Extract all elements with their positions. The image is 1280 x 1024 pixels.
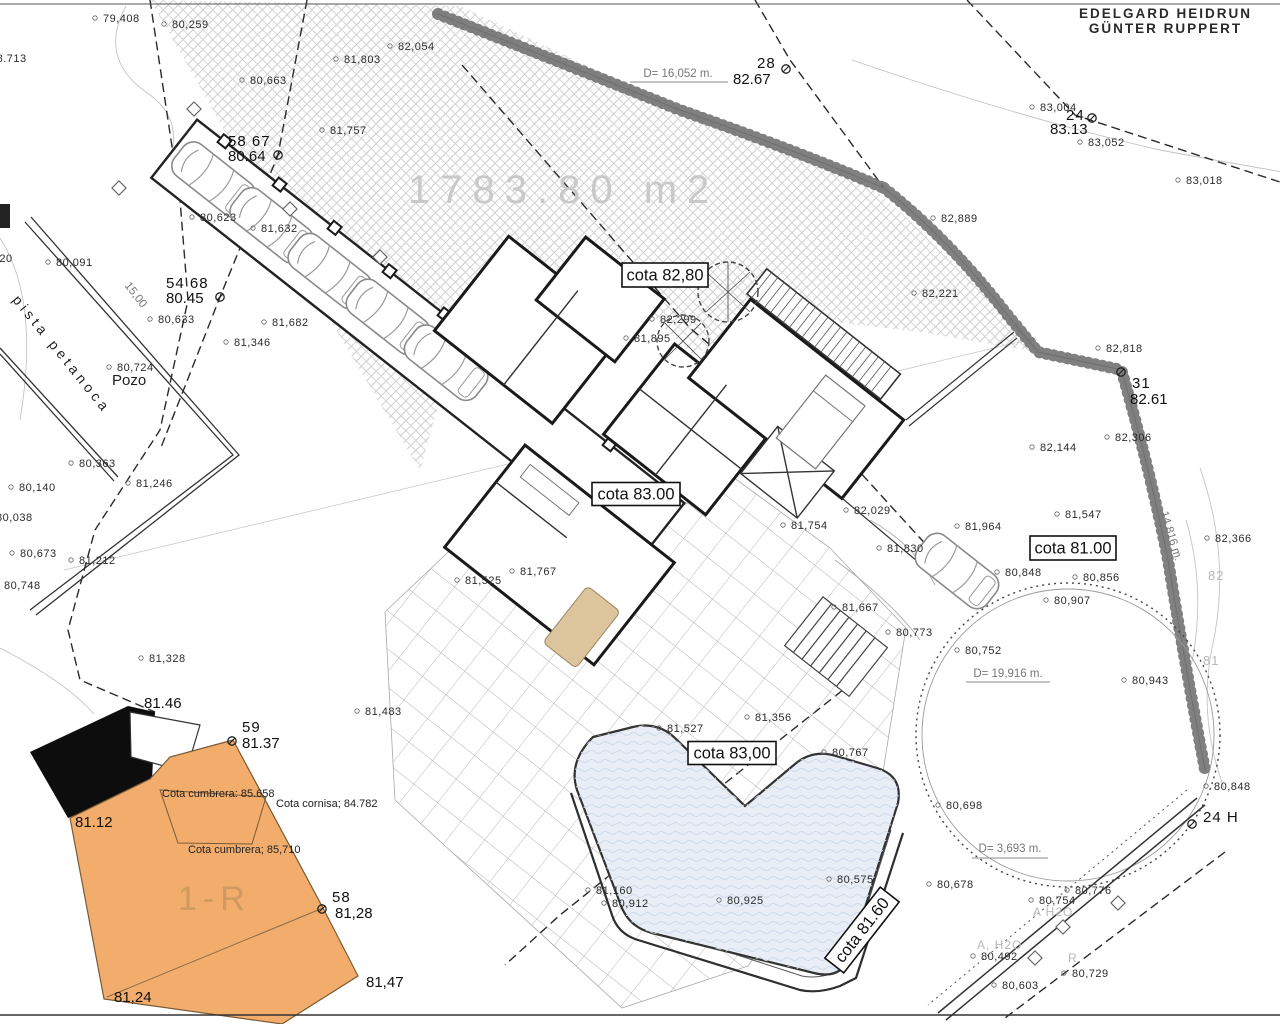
spot-elevation: 80,729 xyxy=(1072,968,1109,980)
spot-elevation: 81,525 xyxy=(465,575,502,587)
cota-box: cota 83,00 xyxy=(688,742,776,765)
spot-elevation: 81,682 xyxy=(272,317,309,329)
cota-box: cota 83.00 xyxy=(592,483,680,506)
spot-elevation: 80,776 xyxy=(1075,885,1112,897)
vertex-elevation: 80.64 xyxy=(228,148,266,165)
spot-elevation: 80,848 xyxy=(1214,781,1251,793)
parcel-area-label: 1783.80 m2 xyxy=(408,168,719,213)
site-plan-page: 79,40880,25978.71382,05481,80380,66381,7… xyxy=(0,0,1280,1024)
spot-elevation: 80,912 xyxy=(612,898,649,910)
spot-elevation: 82,054 xyxy=(398,41,435,53)
vertex-elevation: 81.37 xyxy=(242,735,280,752)
vertex-elevation: 82.67 xyxy=(733,71,771,88)
spot-elevation: 80,363 xyxy=(79,458,116,470)
spot-elevation: 81,830 xyxy=(887,543,924,555)
spot-elevation: 81,160 xyxy=(596,885,633,897)
spot-elevation: 80,673 xyxy=(20,548,57,560)
spot-elevation: 81,767 xyxy=(520,566,557,578)
spot-elevation: 80,752 xyxy=(965,645,1002,657)
roof-height-label: Cota cornisa; 84.782 xyxy=(276,798,378,810)
roof-height-label: Cota cumbrera: 85.658 xyxy=(162,788,275,800)
spot-elevation: 80,575 xyxy=(837,874,874,886)
spot-elevation: 81,328 xyxy=(149,653,186,665)
owner-name: EDELGARD HEIDRUN GÜNTER RUPPERT xyxy=(1079,6,1252,36)
vertex-elevation: 82.61 xyxy=(1130,391,1168,408)
spot-elevation: 82,889 xyxy=(941,213,978,225)
vertex-number: 59 xyxy=(242,719,261,736)
spot-elevation: 80,038 xyxy=(0,512,33,524)
spot-elevation: 80,663 xyxy=(250,75,287,87)
spot-elevation: 81,246 xyxy=(136,478,173,490)
vertex-number: 31 xyxy=(1132,375,1151,392)
cota-box: cota 82,80 xyxy=(622,263,708,287)
corner-elevation: 81,24 xyxy=(114,989,152,1006)
spot-elevation: 82,144 xyxy=(1040,442,1077,454)
spot-elevation: 81,483 xyxy=(365,706,402,718)
spot-elevation: 80,698 xyxy=(946,800,983,812)
spot-elevation: 81,757 xyxy=(330,125,367,137)
site-plan-drawing: 79,40880,25978.71382,05481,80380,66381,7… xyxy=(0,0,1280,1024)
spot-elevation: 80,091 xyxy=(56,257,93,269)
cota-box: cota 81.00 xyxy=(1030,536,1116,560)
spot-elevation: 80,603 xyxy=(1002,980,1039,992)
spot-elevation: 80,925 xyxy=(727,895,764,907)
spot-elevation: 81,212 xyxy=(79,555,116,567)
spot-elevation: 80,492 xyxy=(981,951,1018,963)
dimension-label: D= 16,052 m. xyxy=(643,68,712,80)
spot-elevation: 78.713 xyxy=(0,53,27,65)
cota-label: cota 81.00 xyxy=(1034,540,1111,558)
spot-elevation: 82,221 xyxy=(922,288,959,300)
vertex-number: 28 xyxy=(757,55,776,72)
dimension-label: D= 19,916 m. xyxy=(973,668,1042,680)
grey-label: A H2O xyxy=(1033,905,1073,919)
spot-elevation: 81,803 xyxy=(344,54,381,66)
spot-elevation: 81,754 xyxy=(791,520,828,532)
spot-elevation: 80,748 xyxy=(4,580,41,592)
spot-elevation: 80,943 xyxy=(1132,675,1169,687)
spot-elevation: 79,408 xyxy=(103,13,140,25)
spot-elevation: 80,140 xyxy=(19,482,56,494)
cota-label: cota 83.00 xyxy=(597,486,674,504)
spot-elevation: 81,964 xyxy=(965,521,1002,533)
pozo-label: Pozo xyxy=(112,372,146,389)
roof-height-label: Cota cumbrera; 85,710 xyxy=(188,844,301,856)
spot-elevation: 81,547 xyxy=(1065,509,1102,521)
spot-elevation: 80,767 xyxy=(832,747,869,759)
corner-elevation: 81.12 xyxy=(75,814,113,831)
spot-elevation: 81,895 xyxy=(634,333,671,345)
spot-elevation: 81,346 xyxy=(234,337,271,349)
spot-elevation: 82,818 xyxy=(1106,343,1143,355)
vertex-number: 24 H xyxy=(1203,809,1239,826)
dimension-label: D= 3,693 m. xyxy=(979,843,1042,855)
spot-elevation: 83,052 xyxy=(1088,137,1125,149)
spot-elevation: 80,856 xyxy=(1083,572,1120,584)
corner-elevation: 81,47 xyxy=(366,974,404,991)
spot-elevation: 80,773 xyxy=(896,627,933,639)
spot-elevation: 80,907 xyxy=(1054,595,1091,607)
spot-elevation: 81,632 xyxy=(261,223,298,235)
spot-elevation: 80,633 xyxy=(158,314,195,326)
vertex-elevation: 83.13 xyxy=(1050,121,1088,138)
spot-elevation: 82,029 xyxy=(854,505,891,517)
grey-label: R xyxy=(1068,951,1078,965)
grey-label: A, H2O xyxy=(977,938,1022,952)
cota-label: cota 83,00 xyxy=(693,745,770,763)
spot-elevation: 82,306 xyxy=(1115,432,1152,444)
spot-elevation: 81,356 xyxy=(755,712,792,724)
spot-elevation: 80,848 xyxy=(1005,567,1042,579)
spot-elevation: 81,667 xyxy=(842,602,879,614)
vertex-number: 58 xyxy=(332,889,351,906)
corner-elevation: 81.46 xyxy=(144,695,182,712)
vertex-elevation: 81,28 xyxy=(335,905,373,922)
spot-elevation: 82,366 xyxy=(1215,533,1252,545)
spot-elevation: 80.920 xyxy=(0,253,13,265)
vertex-elevation: 80.45 xyxy=(166,290,204,307)
cota-label: cota 82,80 xyxy=(626,267,703,285)
spot-elevation: 80,623 xyxy=(200,212,237,224)
grey-label: 81 xyxy=(1203,653,1219,668)
spot-elevation: 83,018 xyxy=(1186,175,1223,187)
spot-elevation: 81,527 xyxy=(667,723,704,735)
spot-elevation: 80,259 xyxy=(172,19,209,31)
grey-label: 82 xyxy=(1208,568,1224,583)
spot-elevation: 80,678 xyxy=(937,879,974,891)
spot-elevation: 82,299 xyxy=(660,314,697,326)
building-1r-label: 1-R xyxy=(178,880,251,919)
owner-name-line2: GÜNTER RUPPERT xyxy=(1079,21,1252,36)
owner-name-line1: EDELGARD HEIDRUN xyxy=(1079,6,1252,21)
